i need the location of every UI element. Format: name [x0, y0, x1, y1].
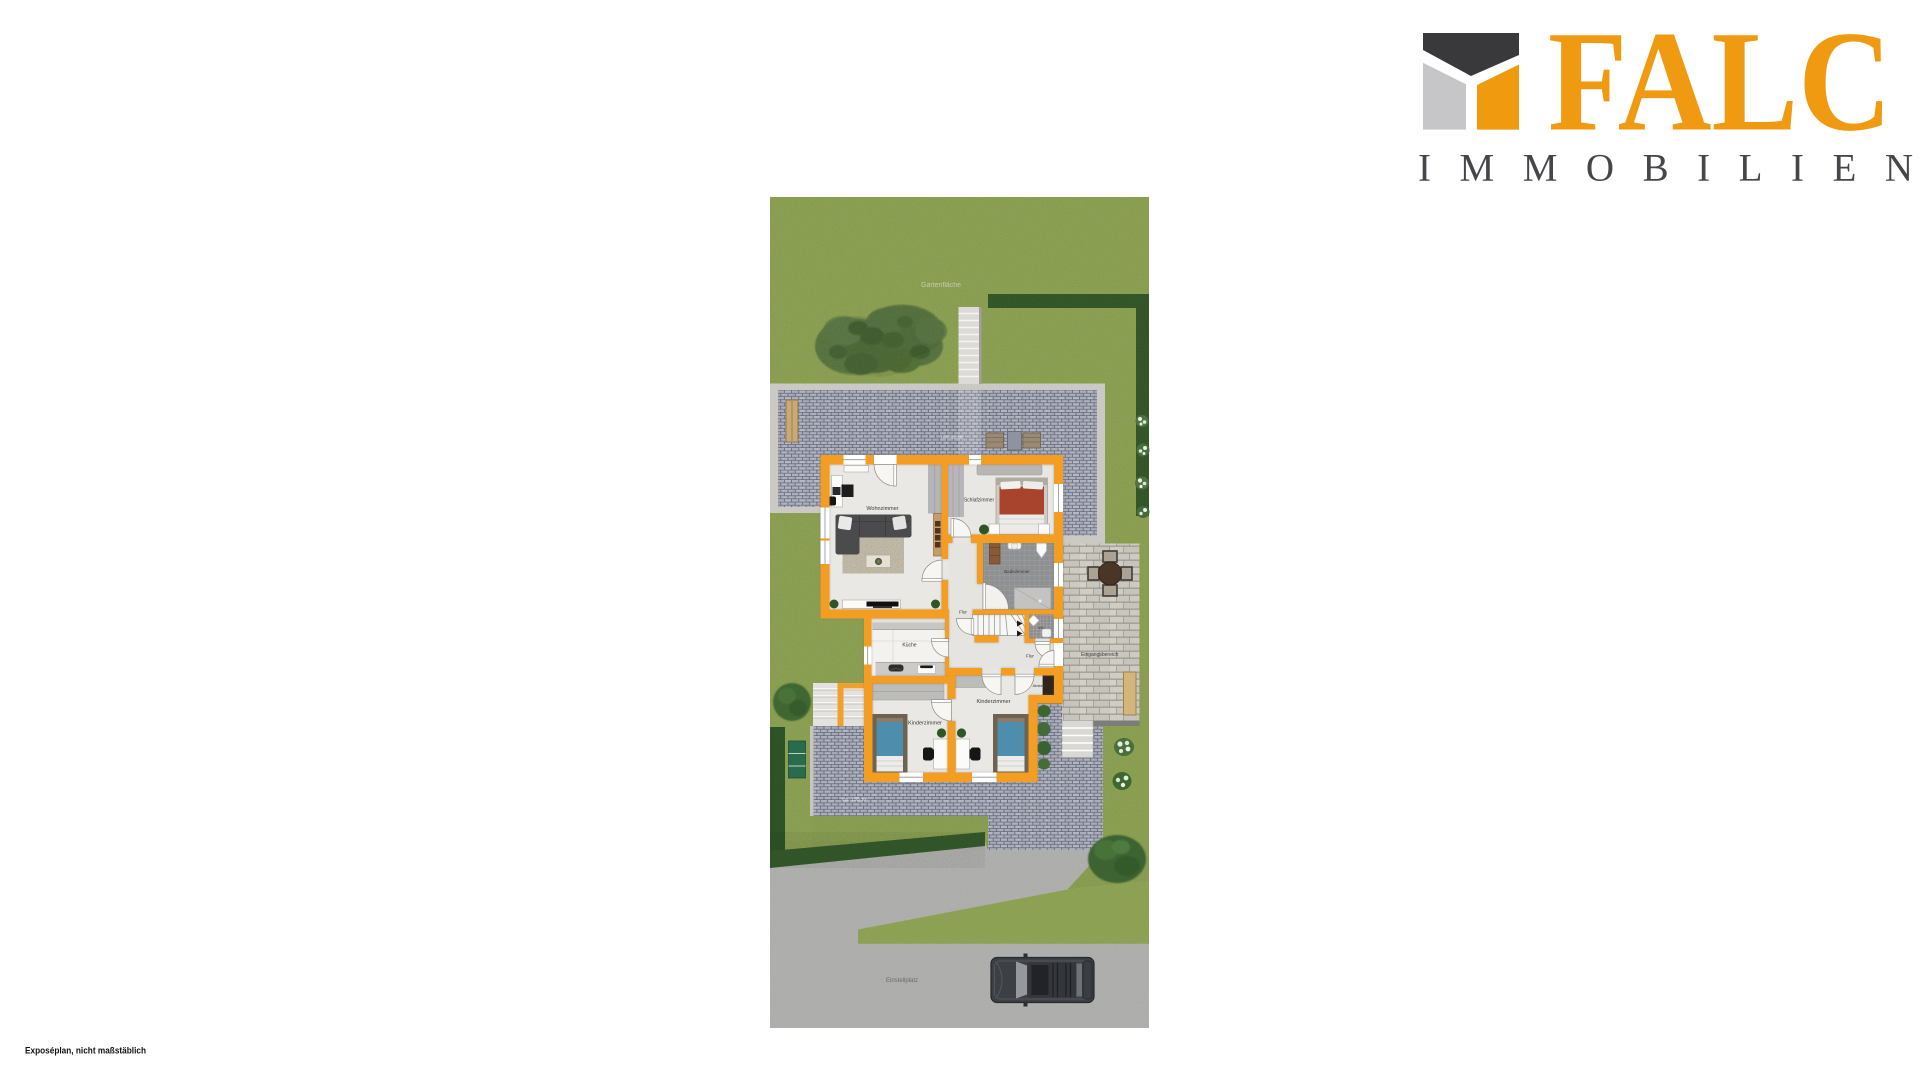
svg-text:IMMOBILIEN: IMMOBILIEN [1418, 147, 1913, 190]
svg-text:Schlafzimmer: Schlafzimmer [964, 498, 995, 504]
svg-text:Badezimmer: Badezimmer [1004, 569, 1030, 574]
svg-text:Küche: Küche [902, 643, 916, 649]
svg-text:Flur: Flur [1026, 654, 1034, 659]
svg-text:Abstell.: Abstell. [1032, 683, 1045, 688]
svg-text:FALC: FALC [1548, 3, 1892, 162]
svg-text:Gartenfläche: Gartenfläche [921, 282, 961, 289]
svg-text:Eingangsbereich: Eingangsbereich [1081, 652, 1118, 658]
svg-text:Wohnzimmer: Wohnzimmer [866, 506, 898, 512]
svg-text:Terrasse: Terrasse [940, 435, 964, 441]
svg-text:WC: WC [1039, 626, 1045, 630]
svg-text:Kinderzimmer: Kinderzimmer [977, 699, 1011, 705]
svg-text:Einstellplatz: Einstellplatz [886, 978, 918, 984]
svg-text:ca. 135 m²: ca. 135 m² [842, 797, 868, 803]
svg-text:Exposéplan, nicht maßstäblich: Exposéplan, nicht maßstäblich [25, 1046, 146, 1056]
svg-text:Kinderzimmer: Kinderzimmer [908, 721, 942, 727]
svg-text:Flur: Flur [959, 610, 967, 615]
